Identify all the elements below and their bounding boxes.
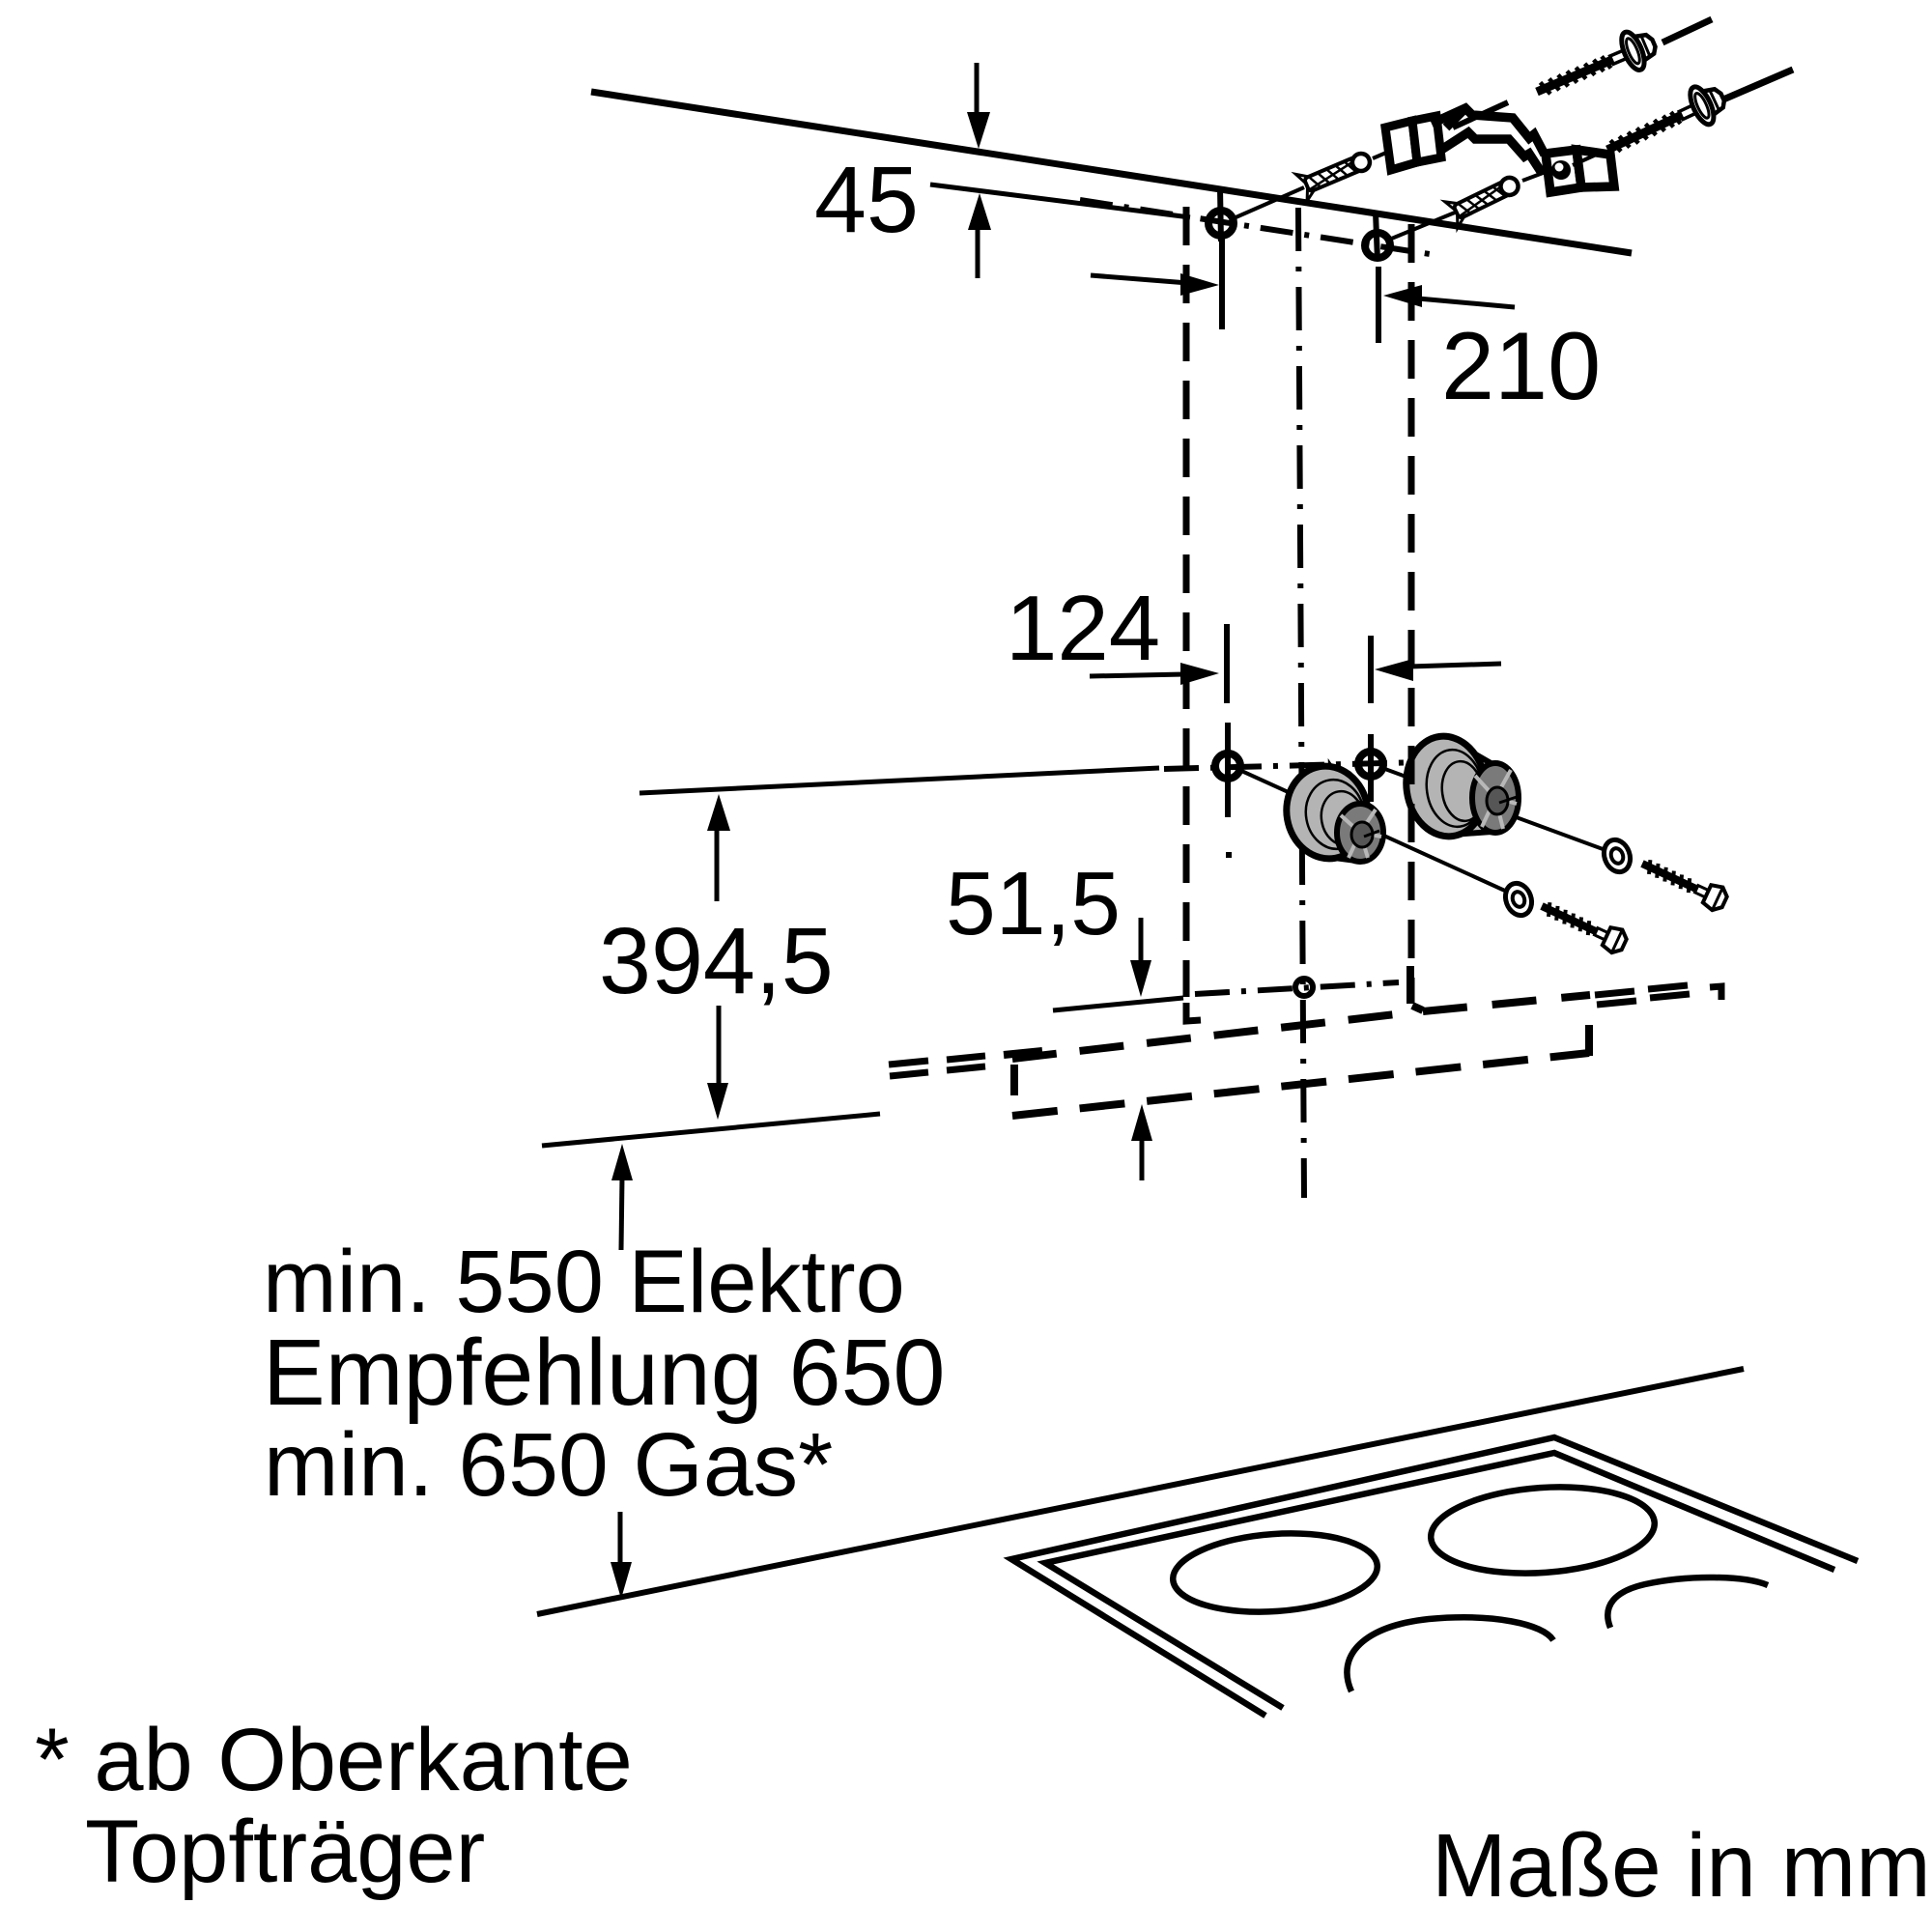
svg-text:45: 45 <box>814 147 919 252</box>
svg-text:Empfehlung 650: Empfehlung 650 <box>263 1320 945 1425</box>
svg-text:Topfträger: Topfträger <box>85 1803 485 1901</box>
svg-text:394,5: 394,5 <box>599 908 834 1013</box>
svg-text:min. 550 Elektro: min. 550 Elektro <box>263 1233 905 1331</box>
svg-text:* ab Oberkante: * ab Oberkante <box>35 1711 633 1809</box>
svg-text:min. 650 Gas*: min. 650 Gas* <box>264 1414 833 1515</box>
svg-text:210: 210 <box>1441 312 1601 419</box>
svg-text:Maße in mm: Maße in mm <box>1432 1815 1931 1916</box>
svg-text:51,5: 51,5 <box>946 853 1121 953</box>
svg-text:124: 124 <box>1006 577 1160 680</box>
